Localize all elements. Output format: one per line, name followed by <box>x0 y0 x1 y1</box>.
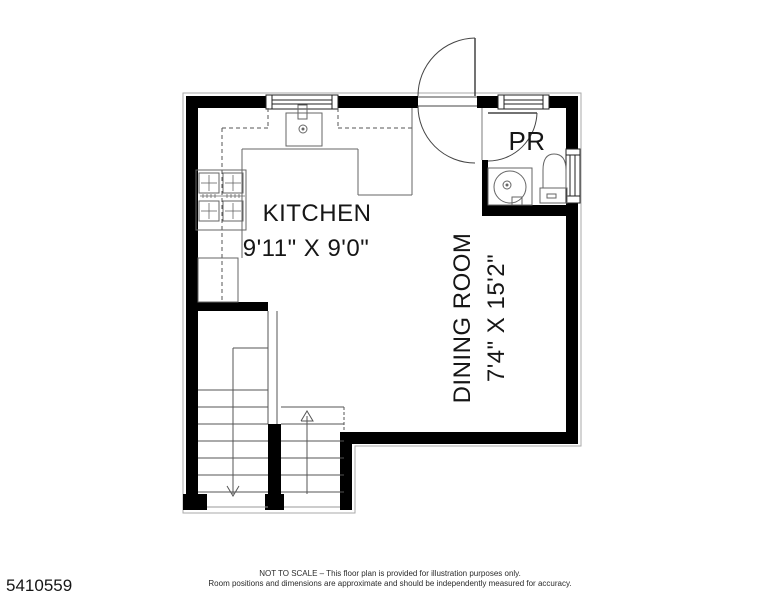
kitchen-sink-icon <box>286 105 322 146</box>
listing-id: 5410559 <box>6 576 72 594</box>
wall-top-entry-right <box>477 96 500 108</box>
stove-icon <box>196 170 246 230</box>
base-cabinet <box>198 258 238 302</box>
disclaimer-line-1: NOT TO SCALE – This floor plan is provid… <box>259 569 521 578</box>
wall-pr-bottom <box>482 205 578 216</box>
wall-top-mid <box>338 96 418 108</box>
toilet-icon <box>540 154 567 203</box>
stairs-up-arrow-icon <box>301 411 313 494</box>
wall-bottom-dining <box>340 432 578 444</box>
window-dining-right-icon <box>566 149 580 203</box>
kitchen-dimensions: 9'11" X 9'0" <box>243 235 370 262</box>
powder-room-label: PR <box>508 126 545 156</box>
entry-door-swing-down <box>418 106 475 163</box>
wall-top-left <box>186 96 268 108</box>
wall-foot-divider <box>265 494 284 510</box>
wall-kitchen-stairs <box>186 302 268 311</box>
dining-room-label: DINING ROOM <box>449 233 476 404</box>
floor-plan-page: KITCHEN 9'11" X 9'0" DINING ROOM 7'4" X … <box>0 0 768 594</box>
stairs-up-treads <box>281 407 344 507</box>
wall-foot-left <box>183 494 207 510</box>
wall-right <box>566 96 578 443</box>
disclaimer-line-2: Room positions and dimensions are approx… <box>208 579 571 588</box>
window-pr-top-icon <box>498 95 549 109</box>
entry-door-icon <box>418 38 477 163</box>
powder-room-sink-icon <box>488 168 532 205</box>
dining-room-dimensions: 7'4" X 15'2" <box>483 254 510 382</box>
floor-plan-drawing: KITCHEN 9'11" X 9'0" DINING ROOM 7'4" X … <box>0 0 768 594</box>
wall-stair-right <box>340 432 352 510</box>
kitchen-label: KITCHEN <box>263 200 372 227</box>
entry-door-swing-up <box>418 38 475 96</box>
powder-room-fixtures <box>482 108 567 205</box>
window-kitchen-top-icon <box>266 95 338 109</box>
